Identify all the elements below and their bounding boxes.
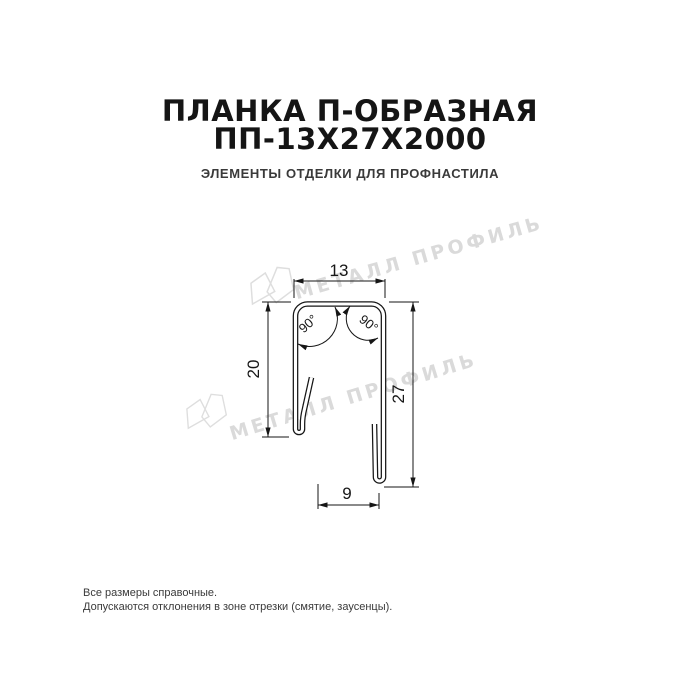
dim-left-height-value: 20 bbox=[244, 360, 263, 379]
page-title: ПЛАНКА П-ОБРАЗНАЯ ПП-13Х27Х2000 bbox=[0, 97, 700, 153]
dim-right-height-value: 27 bbox=[389, 385, 408, 404]
dimension-left-height: 20 bbox=[244, 302, 291, 437]
dim-bottom-width-value: 9 bbox=[342, 484, 351, 503]
header: ПЛАНКА П-ОБРАЗНАЯ ПП-13Х27Х2000 ЭЛЕМЕНТЫ… bbox=[0, 97, 700, 181]
footer-notes: Все размеры справочные. Допускаются откл… bbox=[83, 587, 392, 614]
angle-annotation-right: 90° bbox=[346, 306, 381, 340]
dimension-bottom-width: 9 bbox=[318, 484, 379, 509]
title-line-1: ПЛАНКА П-ОБРАЗНАЯ bbox=[0, 97, 700, 125]
angle-annotation-left: 90° bbox=[296, 307, 338, 346]
dimension-top-width: 13 bbox=[294, 261, 385, 298]
footer-note-2: Допускаются отклонения в зоне отрезки (с… bbox=[83, 601, 392, 615]
dimension-right-height: 27 bbox=[384, 302, 419, 487]
angle-left-value: 90° bbox=[296, 312, 321, 336]
title-line-2: ПП-13Х27Х2000 bbox=[0, 125, 700, 153]
angle-right-value: 90° bbox=[356, 311, 381, 335]
page-subtitle: ЭЛЕМЕНТЫ ОТДЕЛКИ ДЛЯ ПРОФНАСТИЛА bbox=[0, 166, 700, 181]
footer-note-1: Все размеры справочные. bbox=[83, 587, 392, 601]
dim-top-width-value: 13 bbox=[330, 261, 349, 280]
